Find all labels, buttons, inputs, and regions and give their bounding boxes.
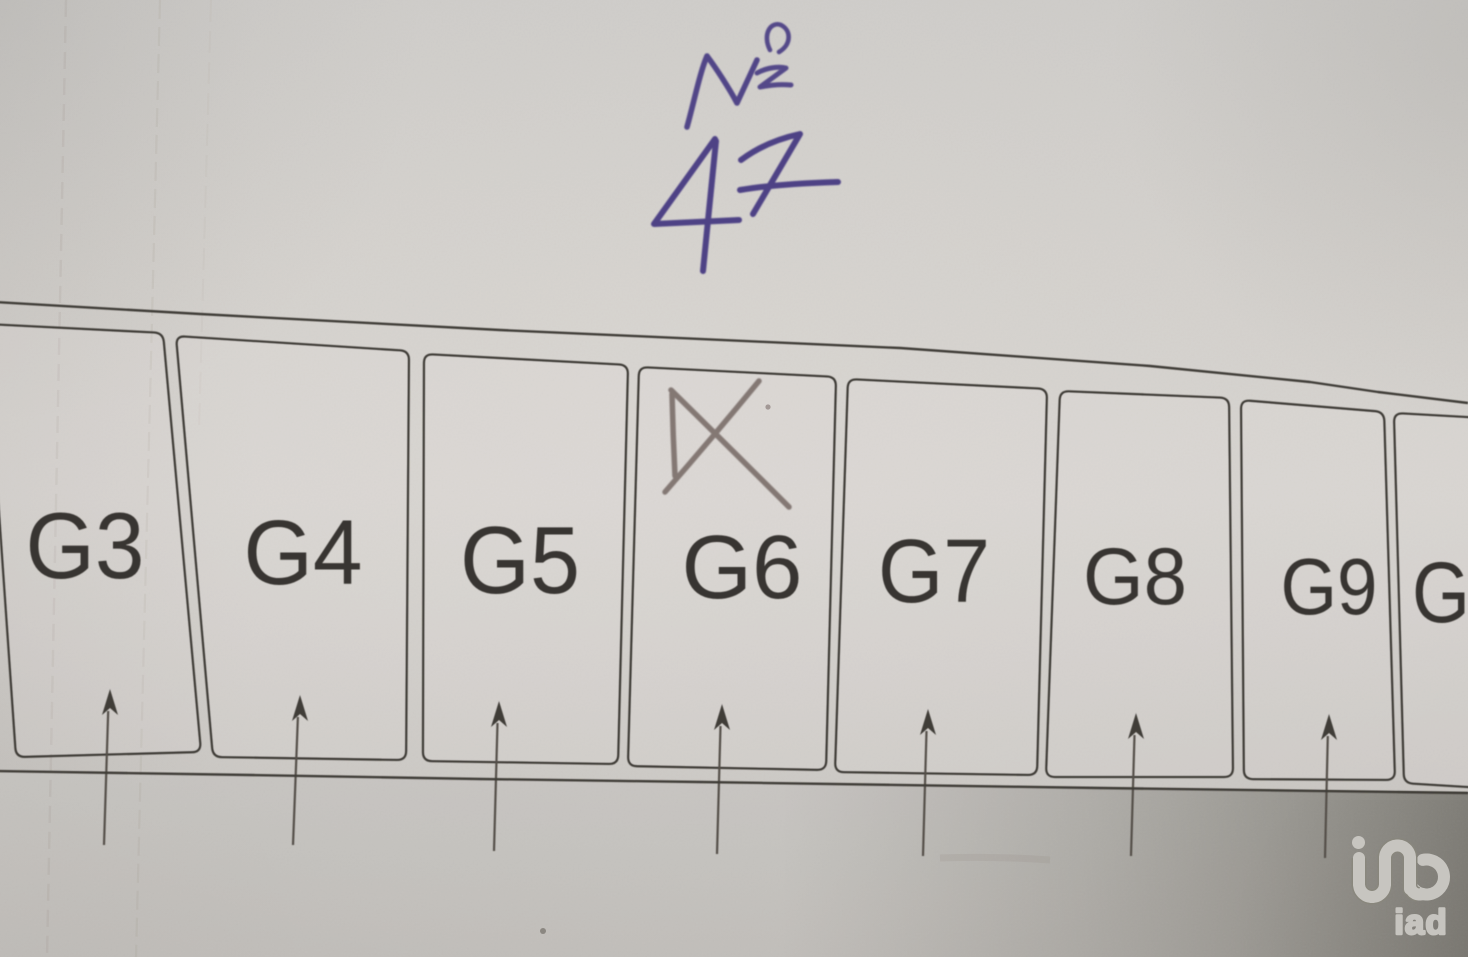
svg-text:G7: G7 — [878, 522, 990, 622]
svg-text:G: G — [1412, 545, 1468, 641]
svg-text:G6: G6 — [682, 518, 803, 618]
svg-text:G4: G4 — [244, 502, 363, 604]
svg-text:G9: G9 — [1281, 542, 1378, 631]
svg-text:G3: G3 — [26, 493, 145, 598]
svg-text:G5: G5 — [460, 507, 580, 614]
svg-text:iad: iad — [1394, 903, 1448, 942]
svg-text:G8: G8 — [1083, 532, 1187, 622]
